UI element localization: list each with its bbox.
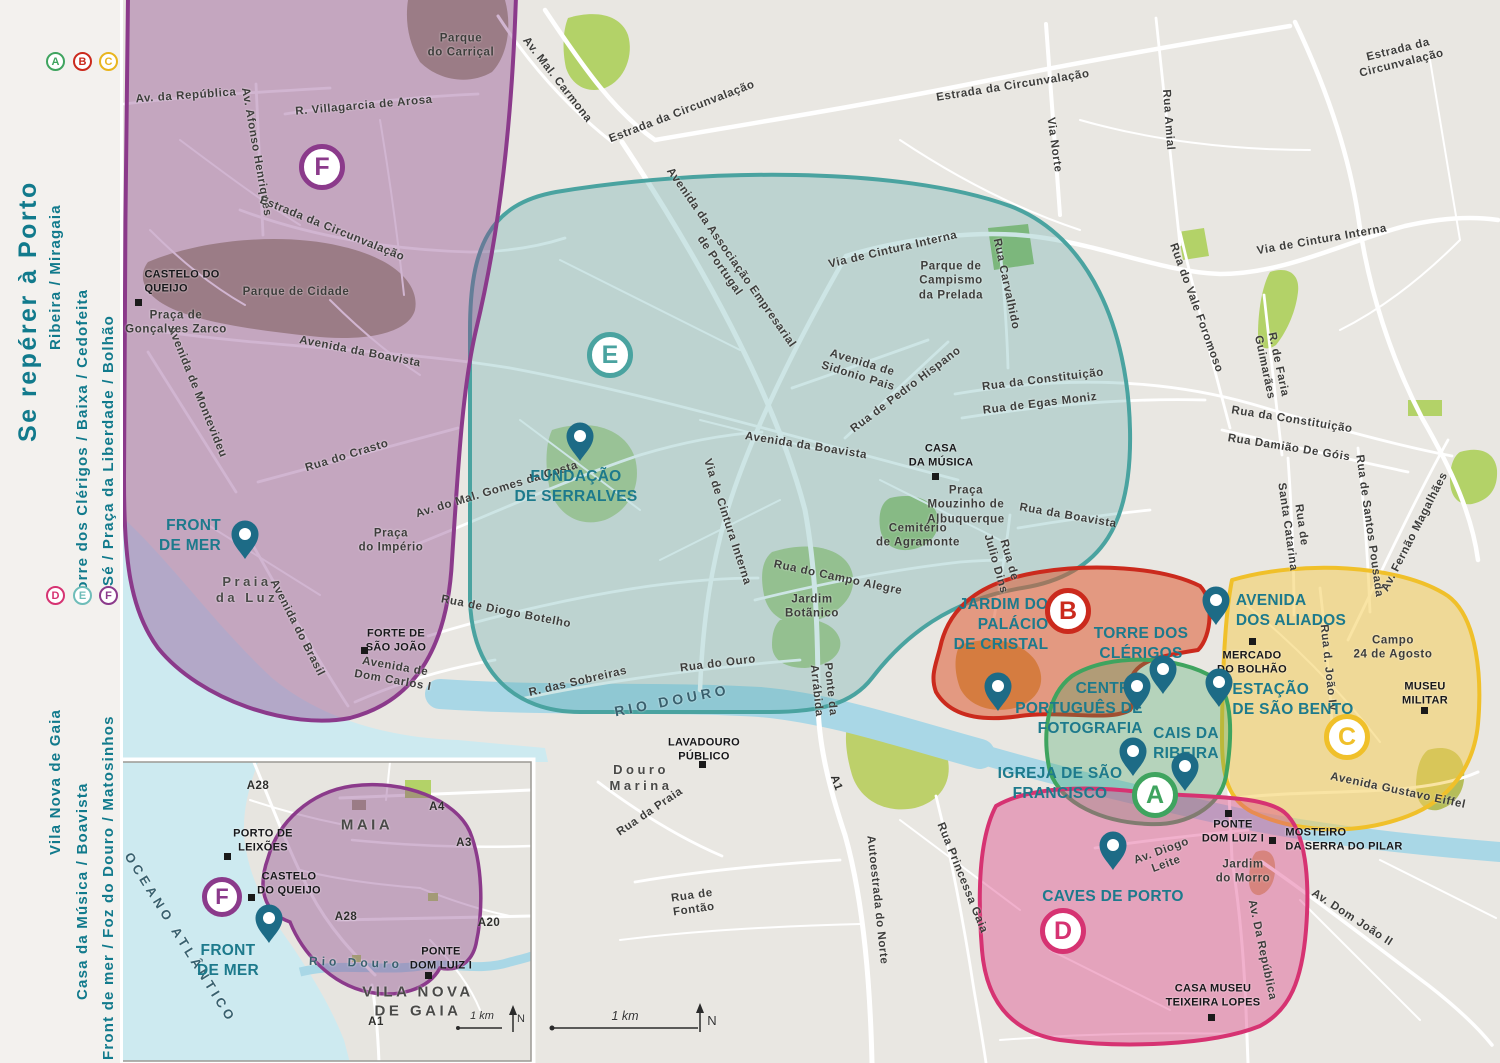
sq-casa-da-musica: [932, 473, 939, 480]
zone-badge-f: F: [202, 877, 242, 917]
zone-badge-c: C: [1324, 714, 1370, 760]
inset-north-label: N: [517, 1013, 525, 1027]
landmark-label: CASA DA MÚSICA: [909, 442, 974, 471]
poi-label-estacao-sao-bento: ESTAÇÃO DE SÃO BENTO: [1232, 680, 1353, 720]
sq-museu-militar: [1421, 707, 1428, 714]
street-label: Praça de Gonçalves Zarco: [125, 309, 227, 338]
area-label: Praia da Luz: [216, 574, 278, 607]
landmark-label: FORTE DE SÃO JOÃO: [366, 627, 426, 656]
street-label: Praça Mouzinho de Albuquerque: [927, 483, 1005, 526]
legend-label-b: Torre dos Clérigos / Baixa / Cedofeita: [75, 289, 91, 600]
street-label: Campo 24 de Agosto: [1354, 634, 1433, 663]
sq-castelo-do-queijo: [135, 299, 142, 306]
legend-marker-d: D: [46, 586, 65, 605]
area-label: MAIA: [341, 817, 393, 836]
street-label: Jardim Botãnico: [785, 593, 839, 622]
street-label: Ponte da Arrábida: [806, 662, 840, 718]
road-number: A1: [368, 1015, 384, 1029]
porto-map-page: Av. Mal. CarmonaEstrada da Circunvalação…: [0, 0, 1500, 1063]
landmark-label: MUSEU MILITAR: [1402, 680, 1448, 709]
legend-label-f: Front de mer / Foz do Douro / Matosinhos: [101, 715, 117, 1060]
street-label: Rua de Fontão: [670, 886, 716, 920]
road-number: A28: [335, 910, 358, 924]
road-number: A20: [478, 916, 501, 930]
road-number: A4: [429, 800, 445, 814]
inset-scale-label: 1 km: [470, 1010, 494, 1024]
sq-lavadouro-publico: [699, 761, 706, 768]
landmark-label: PONTE DOM LUIZ I: [410, 945, 472, 974]
street-label: Praça do Império: [359, 527, 424, 556]
zone-badge-b: B: [1045, 588, 1091, 634]
zone-badge-f: F: [299, 144, 345, 190]
poi-label-caves-de-porto: CAVES DE PORTO: [1042, 887, 1183, 907]
road-number: A28: [247, 779, 270, 793]
landmark-label: CASTELO DO QUEIJO: [144, 268, 219, 297]
legend-label-a: Ribeira / Miragaia: [48, 204, 64, 350]
poi-label-front-de-mer: FRONT DE MER: [159, 516, 221, 556]
sq-ponte-dom-luiz-inset: [425, 972, 432, 979]
sq-ponte-dom-luiz: [1225, 810, 1232, 817]
poi-label-igreja-sao-francisco: IGREJA DE SÃO FRANCISCO: [998, 764, 1123, 804]
legend-marker-b: B: [73, 52, 92, 71]
poi-label-front-de-mer-inset: FRONT DE MER: [197, 941, 259, 981]
sq-casa-museu-teixeira-lopes: [1208, 1014, 1215, 1021]
sq-mercado-bolhao: [1249, 638, 1256, 645]
legend-label-e: Casa da Música / Boavista: [75, 782, 91, 1000]
legend-marker-a: A: [46, 52, 65, 71]
landmark-label: PONTE DOM LUIZ I: [1202, 818, 1264, 847]
landmark-label: CASA MUSEU TEIXEIRA LOPES: [1166, 982, 1261, 1011]
street-label: Parque do Carriçal: [428, 32, 495, 61]
zone-badge-d: D: [1040, 908, 1086, 954]
legend-marker-f: F: [99, 586, 118, 605]
sq-forte-sao-joao: [361, 647, 368, 654]
landmark-label: MOSTEIRO DA SERRA DO PILAR: [1285, 826, 1402, 855]
zone-badge-a: A: [1132, 772, 1178, 818]
landmark-label: PORTO DE LEIXÕES: [233, 827, 293, 856]
scale-label: 1 km: [611, 1009, 638, 1025]
page-title: Se repérer à Porto: [14, 180, 43, 442]
poi-label-jardim-palacio-cristal: JARDIM DO PALÁCIO DE CRISTAL: [954, 595, 1049, 655]
legend-sidebar: Se repérer à Porto ARibeira / MiragaiaBT…: [0, 0, 123, 1063]
poi-label-avenida-dos-aliados: AVENIDA DOS ALIADOS: [1236, 591, 1346, 631]
road-number: A3: [456, 836, 472, 850]
landmark-label: CASTELO DO QUEIJO: [257, 870, 321, 899]
zone-badge-e: E: [587, 332, 633, 378]
sq-porto-de-leixoes: [224, 853, 231, 860]
sq-castelo-queijo-inset: [248, 894, 255, 901]
street-label: Cemitério de Agramonte: [876, 522, 960, 551]
street-label: Jardim do Morro: [1216, 858, 1271, 887]
area-label: Douro Marina: [610, 762, 673, 795]
legend-label-d: Vila Nova de Gaia: [48, 709, 64, 855]
street-label: Parque de Cidade: [243, 285, 350, 299]
legend-marker-c: C: [99, 52, 118, 71]
poi-label-fundacao-serralves: FUNDAÇÃO DE SERRALVES: [514, 467, 637, 507]
sq-mosteiro-serra-pilar: [1269, 837, 1276, 844]
street-label: Parque de Campismo da Prelada: [919, 259, 983, 302]
legend-label-c: Sé / Praça da Liberdade / Bolhão: [101, 315, 117, 586]
north-label: N: [707, 1013, 716, 1029]
legend-marker-e: E: [73, 586, 92, 605]
